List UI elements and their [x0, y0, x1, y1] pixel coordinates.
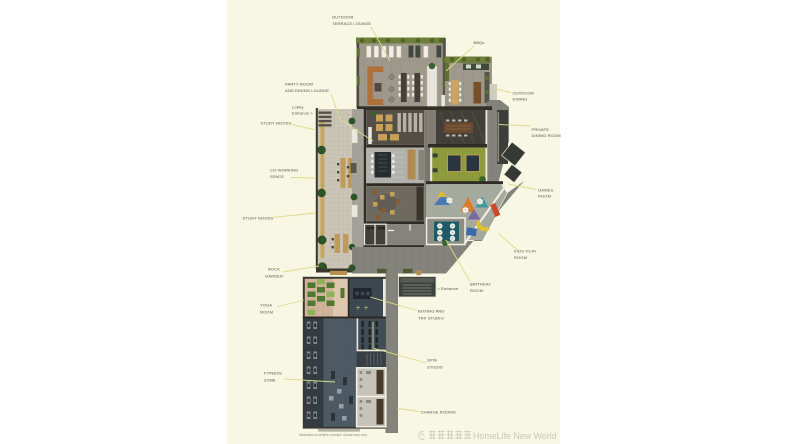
- svg-text:BOXING AND: BOXING AND: [418, 309, 444, 314]
- svg-text:GARDEN: GARDEN: [265, 274, 283, 279]
- svg-text:STUDIO: STUDIO: [427, 365, 443, 370]
- svg-text:Illustration is artist's conce: Illustration is artist's concept. Actual…: [299, 433, 368, 437]
- svg-text:PRIVATE: PRIVATE: [532, 127, 550, 132]
- svg-text:Entrance >: Entrance >: [292, 111, 313, 116]
- svg-text:FITNESS: FITNESS: [264, 371, 282, 376]
- svg-text:ROOM: ROOM: [538, 194, 552, 199]
- svg-text:DINING ROOM: DINING ROOM: [532, 133, 562, 138]
- svg-text:BIRTHDAY: BIRTHDAY: [470, 282, 491, 287]
- svg-text:PARTY ROOM: PARTY ROOM: [285, 82, 313, 87]
- svg-text:SPIN: SPIN: [427, 358, 437, 363]
- svg-text:YOGA: YOGA: [260, 303, 272, 308]
- svg-text:HomeLife New World: HomeLife New World: [473, 431, 557, 441]
- svg-text:ROOM: ROOM: [514, 255, 528, 260]
- svg-text:OUTDOOR: OUTDOOR: [513, 91, 535, 96]
- svg-text:AND DINING LOUNGE: AND DINING LOUNGE: [285, 88, 329, 93]
- svg-text:CO-WORKING: CO-WORKING: [270, 168, 298, 173]
- svg-text:BBQs: BBQs: [474, 40, 485, 45]
- svg-text:OUTDOOR: OUTDOOR: [332, 15, 354, 20]
- svg-text:ROOM: ROOM: [260, 310, 274, 315]
- svg-text:Lobby: Lobby: [292, 105, 304, 110]
- svg-text:GAMES: GAMES: [538, 188, 553, 193]
- svg-text:TERRACE LOUNGE: TERRACE LOUNGE: [332, 21, 371, 26]
- svg-text:STUDY NOOKS: STUDY NOOKS: [243, 216, 274, 221]
- svg-text:ZONE: ZONE: [264, 378, 276, 383]
- svg-text:ROOM: ROOM: [470, 288, 484, 293]
- svg-text:STUDY NOOKS: STUDY NOOKS: [261, 121, 292, 126]
- svg-text:TRX STUDIO: TRX STUDIO: [418, 316, 444, 321]
- svg-text:CHANGE ROOMS: CHANGE ROOMS: [421, 410, 456, 415]
- svg-text:SPACE: SPACE: [270, 174, 284, 179]
- svg-text:ROCK: ROCK: [268, 267, 280, 272]
- svg-text:KIDS' PLAY: KIDS' PLAY: [514, 249, 537, 254]
- svg-text:DINING: DINING: [513, 97, 528, 102]
- svg-text:< Entrance: < Entrance: [438, 286, 460, 291]
